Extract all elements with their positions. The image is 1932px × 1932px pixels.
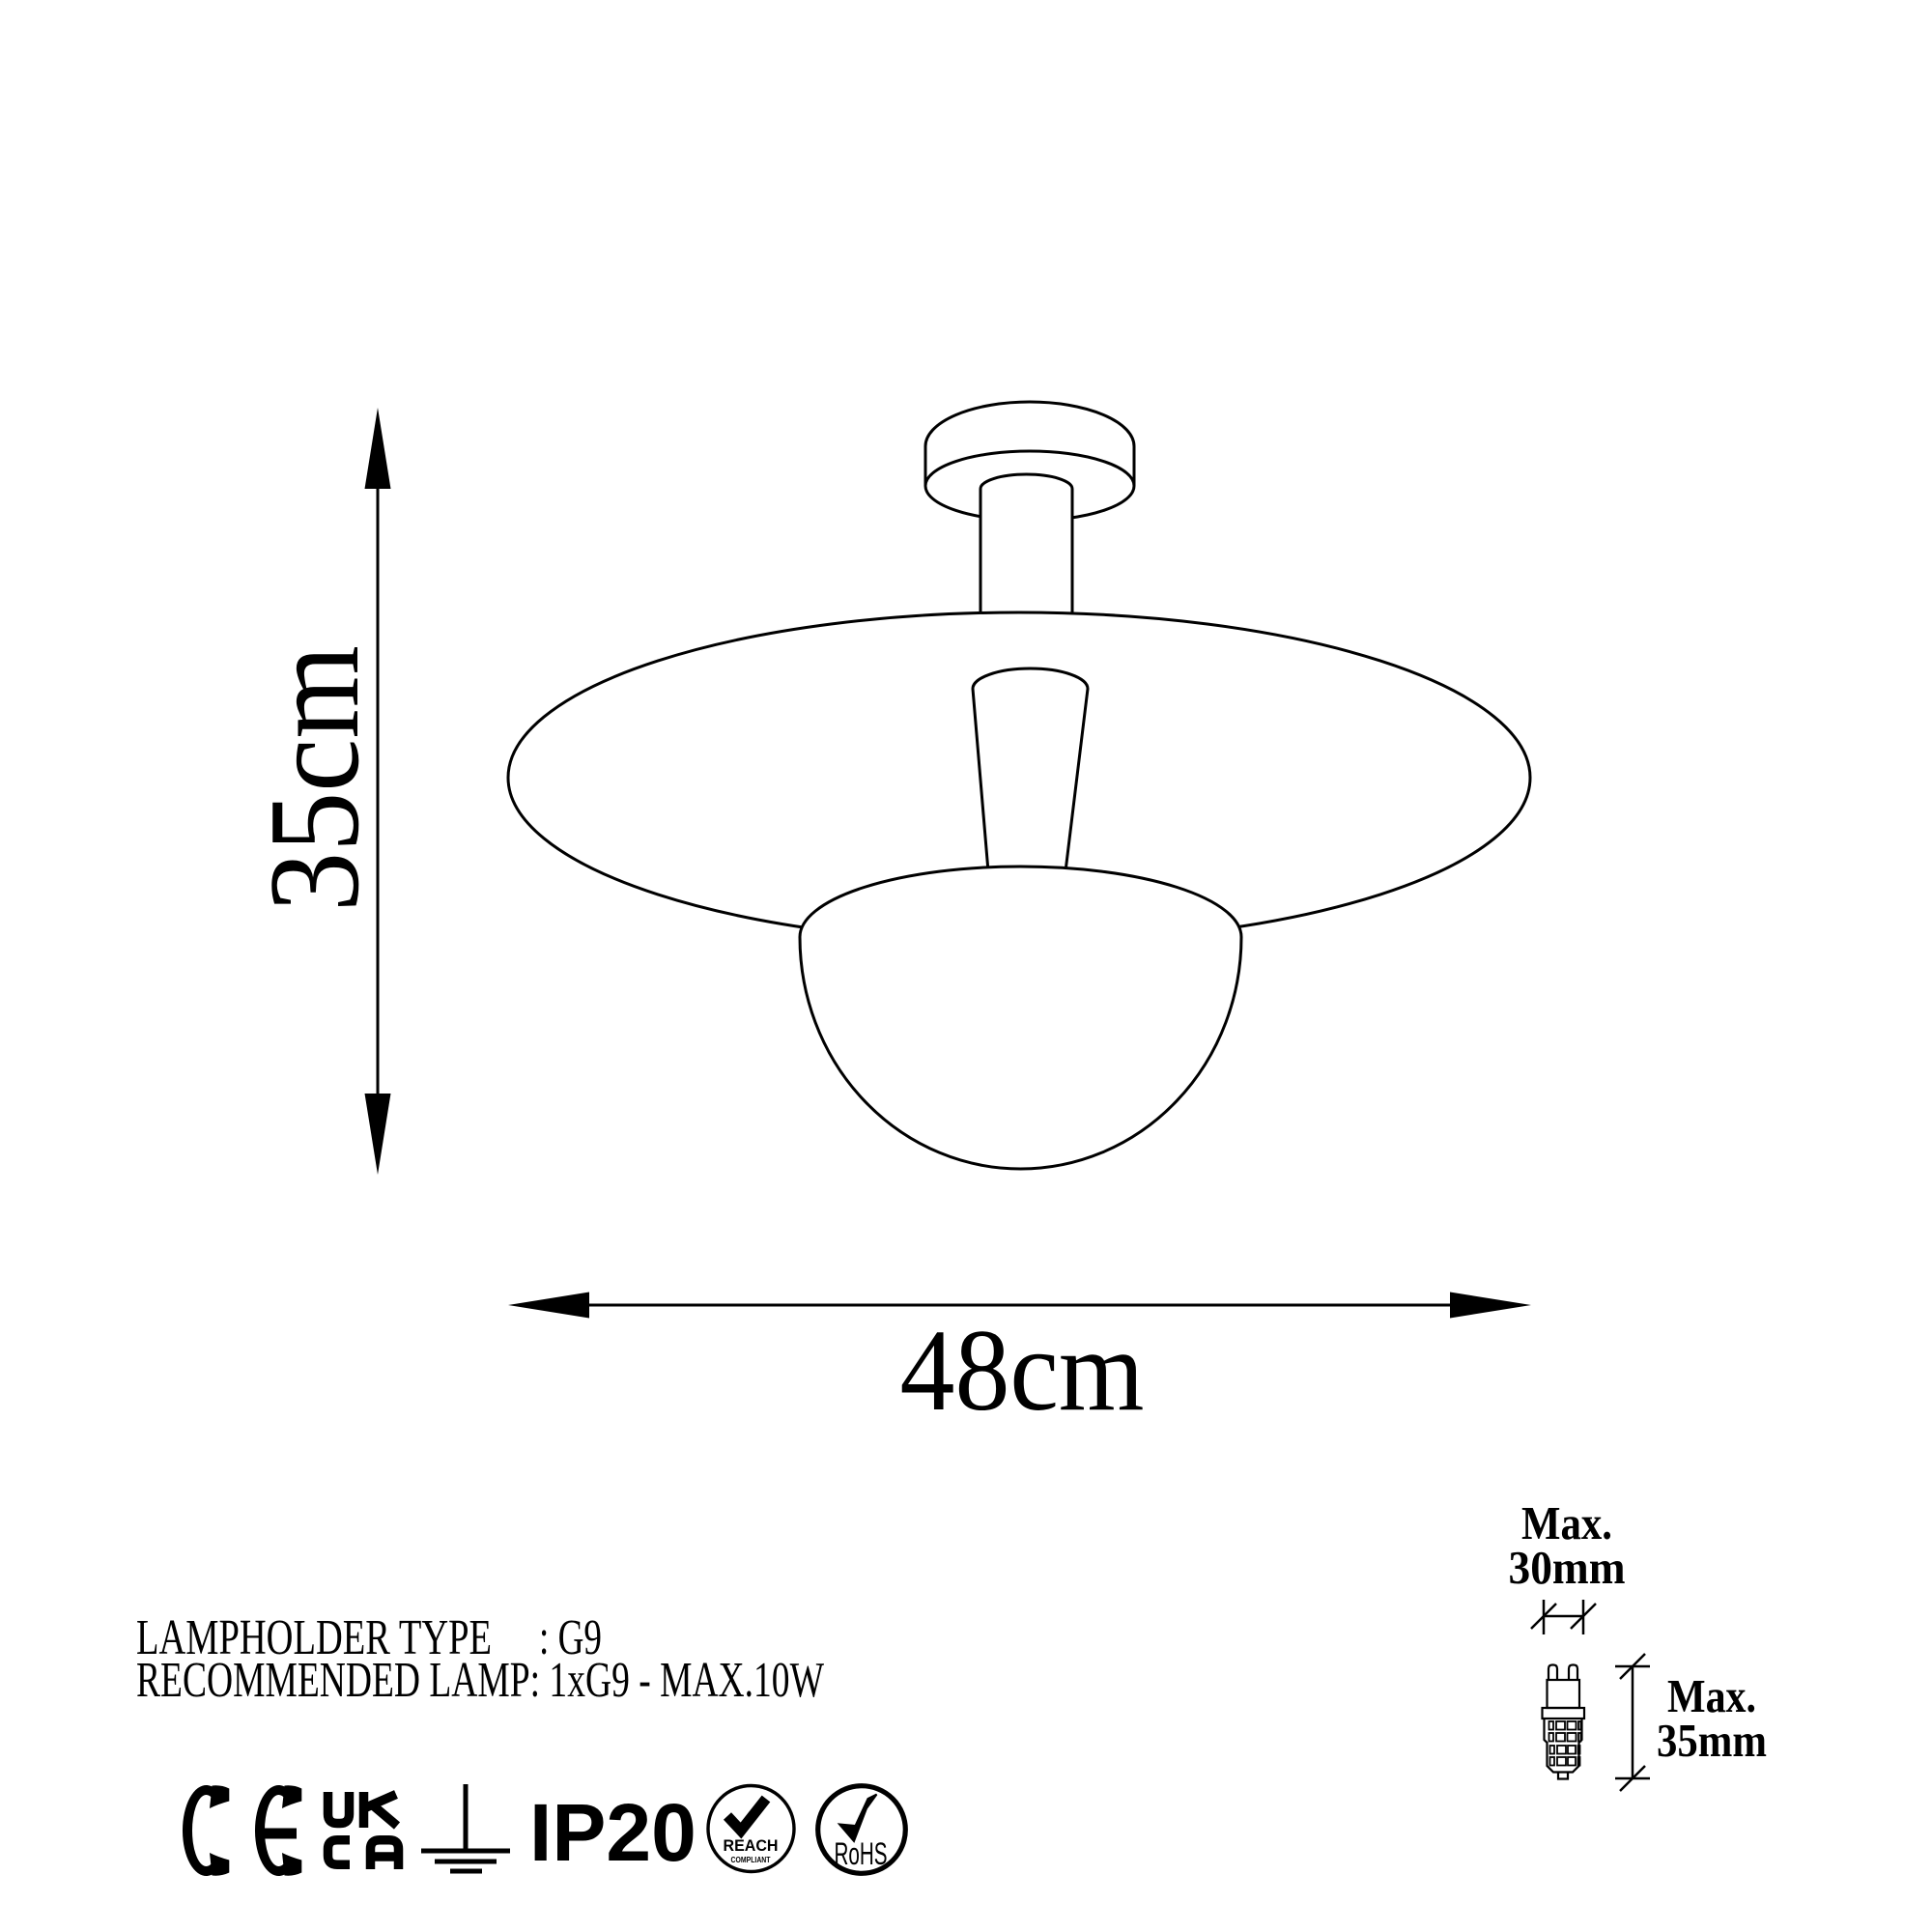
svg-text:IP20: IP20 xyxy=(529,1787,696,1878)
svg-text:RECOMMENDED LAMP: 1xG9 - MAX.1: RECOMMENDED LAMP: 1xG9 - MAX.10W xyxy=(136,1653,824,1708)
svg-text:REACH: REACH xyxy=(724,1836,779,1855)
svg-text:30mm: 30mm xyxy=(1509,1541,1626,1594)
svg-text:35mm: 35mm xyxy=(1657,1714,1767,1767)
svg-text:RoHS: RoHS xyxy=(835,1836,888,1871)
svg-text:48cm: 48cm xyxy=(900,1306,1145,1435)
svg-text:35cm: 35cm xyxy=(242,645,385,912)
svg-text:COMPLIANT: COMPLIANT xyxy=(731,1856,771,1864)
